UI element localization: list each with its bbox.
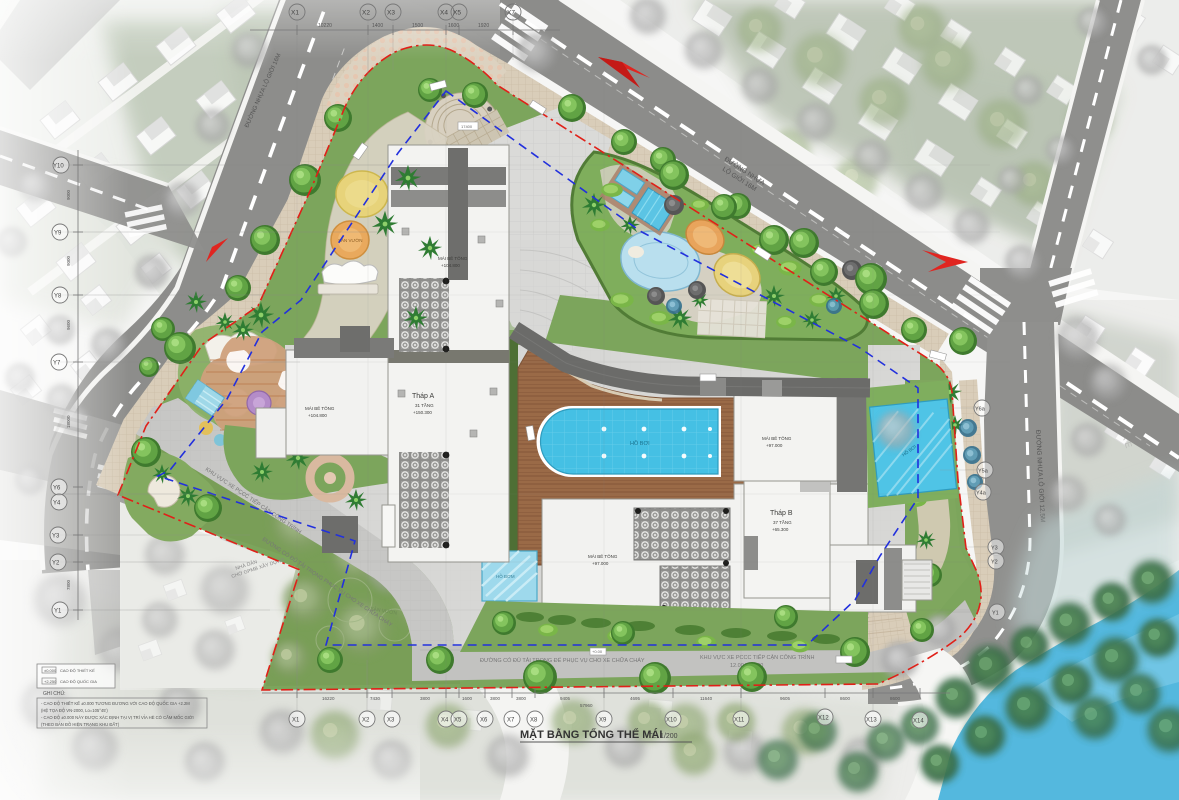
svg-text:MÁI BÊ TÔNG: MÁI BÊ TÔNG [438,254,468,261]
svg-text:3800: 3800 [420,696,431,701]
svg-text:Y5a: Y5a [978,469,989,475]
svg-text:9405: 9405 [560,696,571,701]
svg-text:X7: X7 [507,718,515,724]
svg-text:HỒ BƠM: HỒ BƠM [496,573,515,579]
svg-text:8600: 8600 [890,696,901,701]
svg-text:37 TẦNG: 37 TẦNG [773,519,792,525]
svg-text:TL: 1/200: TL: 1/200 [648,733,678,740]
svg-text:X4: X4 [441,718,449,724]
svg-text:10220: 10220 [318,23,332,29]
svg-text:MÁI BÊ TÔNG: MÁI BÊ TÔNG [588,552,618,559]
svg-text:CAO ĐỘ QUỐC GIA: CAO ĐỘ QUỐC GIA [60,679,97,684]
svg-text:X7: X7 [507,10,515,17]
svg-text:X14: X14 [913,719,924,725]
svg-text:X1: X1 [292,718,300,724]
svg-text:(THEO BẢN ĐỒ HIỆN TRẠNG KHU ĐẤ: (THEO BẢN ĐỒ HIỆN TRẠNG KHU ĐẤT) [41,722,120,727]
svg-text:KHU VỰC XE PCCC TIẾP CẬN CÔNG: KHU VỰC XE PCCC TIẾP CẬN CÔNG TRÌNH [700,654,814,661]
svg-text:1600: 1600 [448,23,459,29]
svg-text:57960: 57960 [580,703,593,708]
svg-text:X10: X10 [666,718,677,724]
svg-text:1920: 1920 [478,23,489,29]
svg-text:+150.300: +150.300 [413,410,432,415]
svg-text:X6: X6 [480,718,488,724]
svg-text:X5: X5 [453,10,461,17]
svg-text:+104.800: +104.800 [308,413,327,418]
svg-text:±0.000: ±0.000 [44,668,57,673]
svg-text:18000: 18000 [66,415,71,428]
svg-text:X11: X11 [734,718,745,724]
svg-text:Y1: Y1 [992,611,999,617]
svg-text:Tháp B: Tháp B [770,510,793,517]
svg-text:X13: X13 [866,718,877,724]
svg-text:Y6a: Y6a [975,407,986,413]
svg-text:Y6: Y6 [53,486,61,492]
svg-text:1500: 1500 [412,23,423,29]
svg-text:X4: X4 [440,10,448,17]
svg-text:+97.000: +97.000 [766,443,783,448]
svg-text:11640: 11640 [700,696,713,701]
svg-text:(HỆ TỌA ĐỘ VN-2000, Lo=105°45': (HỆ TỌA ĐỘ VN-2000, Lo=105°45') [41,708,108,713]
svg-text:8600: 8600 [840,696,851,701]
svg-text:1600: 1600 [462,696,473,701]
svg-text:X8: X8 [530,718,538,724]
svg-text:7430: 7430 [370,696,381,701]
svg-text:3800: 3800 [490,696,501,701]
svg-text:9600: 9600 [66,319,71,330]
svg-text:+0.00: +0.00 [592,649,603,654]
svg-text:Y2: Y2 [52,561,60,567]
svg-text:4695: 4695 [630,696,641,701]
svg-text:- CAO ĐỘ ±0.000 NÀY ĐƯỢC XÁC Đ: - CAO ĐỘ ±0.000 NÀY ĐƯỢC XÁC ĐỊNH TẠI VỊ… [41,715,194,720]
svg-text:X2: X2 [362,10,370,17]
svg-text:MÁI BÊ TÔNG: MÁI BÊ TÔNG [305,404,335,411]
svg-text:Y4a: Y4a [976,491,987,497]
svg-text:X2: X2 [362,718,370,724]
svg-text:Tháp A: Tháp A [412,393,435,400]
svg-text:Y9: Y9 [54,231,62,237]
svg-text:MÁI BÊ TÔNG: MÁI BÊ TÔNG [762,434,792,441]
svg-text:Y3: Y3 [52,534,60,540]
svg-text:X9: X9 [599,718,607,724]
svg-text:9000: 9000 [66,255,71,266]
svg-text:- CAO ĐỘ THIẾT KẾ ±0.000 TƯƠNG: - CAO ĐỘ THIẾT KẾ ±0.000 TƯƠNG ĐƯƠNG VỚI… [41,701,190,706]
svg-text:X1: X1 [291,10,299,17]
svg-text:+65.300: +65.300 [772,527,789,532]
svg-text:Y4: Y4 [53,501,61,507]
svg-text:X3: X3 [387,718,395,724]
svg-text:X5: X5 [454,718,462,724]
svg-text:9000: 9000 [66,189,71,200]
svg-text:+104.800: +104.800 [441,263,460,268]
svg-text:16220: 16220 [322,696,335,701]
svg-text:Y8: Y8 [54,294,62,300]
svg-text:31 TẦNG: 31 TẦNG [415,402,434,408]
svg-text:Y1: Y1 [54,609,62,615]
svg-text:GHI CHÚ:: GHI CHÚ: [43,690,66,697]
svg-text:7800: 7800 [66,579,71,590]
svg-text:Y2: Y2 [991,560,998,566]
svg-text:X3: X3 [387,10,395,17]
svg-text:X12: X12 [818,716,829,722]
svg-text:9605: 9605 [780,696,791,701]
svg-text:+2.250: +2.250 [44,679,57,684]
svg-text:3800: 3800 [516,696,527,701]
svg-text:Y7: Y7 [53,361,61,367]
svg-text:HỒ BƠI: HỒ BƠI [630,440,650,447]
svg-text:ĐƯỜNG CÓ ĐỦ TẢI TRỌNG ĐỂ PHỤC: ĐƯỜNG CÓ ĐỦ TẢI TRỌNG ĐỂ PHỤC VỤ CHO XE … [480,657,645,664]
svg-text:17400: 17400 [461,124,473,129]
svg-text:Y10: Y10 [53,164,64,170]
svg-text:1400: 1400 [372,23,383,29]
svg-text:Y3: Y3 [991,546,998,552]
svg-text:MẶT BẰNG TỔNG THỂ MÁI: MẶT BẰNG TỔNG THỂ MÁI [520,728,662,741]
svg-text:CAO ĐỘ THIẾT KẾ: CAO ĐỘ THIẾT KẾ [60,668,95,673]
